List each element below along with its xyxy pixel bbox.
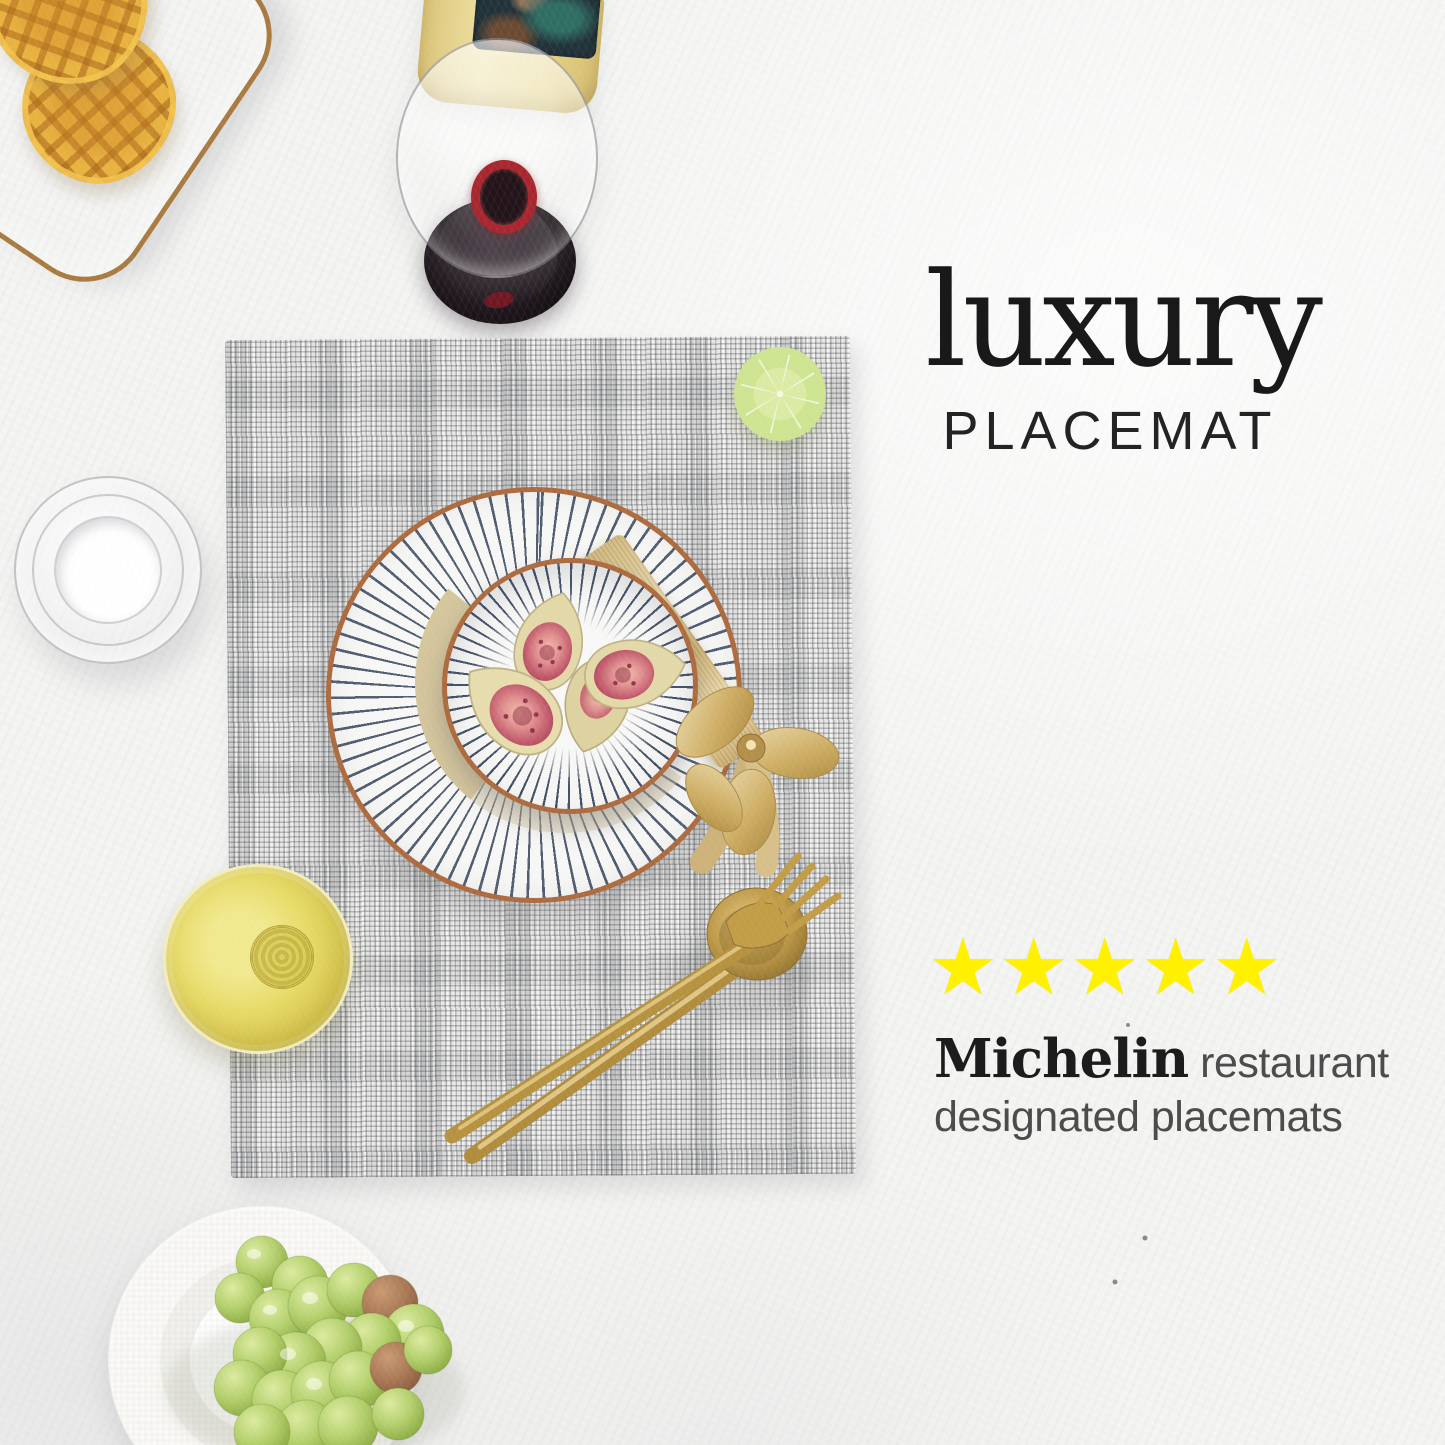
wine-glass-stem-ring bbox=[471, 160, 537, 234]
headline-title: luxury bbox=[925, 250, 1295, 390]
water-glass bbox=[14, 476, 202, 664]
placemat-product-photo: luxury PLACEMAT ★★★★★ Michelinrestaurant… bbox=[0, 0, 1445, 1445]
five-star-rating: ★★★★★ bbox=[928, 926, 1298, 1012]
star-icons: ★★★★★ bbox=[928, 923, 1283, 1013]
tagline-block: Michelinrestaurant designated placemats bbox=[934, 1032, 1364, 1144]
striped-bowl bbox=[442, 558, 698, 814]
tagline-line1: Michelinrestaurant bbox=[934, 1032, 1364, 1090]
lime-half bbox=[734, 347, 826, 441]
tagline-suffix: restaurant bbox=[1200, 1039, 1389, 1087]
tagline-brand: Michelin bbox=[934, 1028, 1188, 1090]
red-wine-glass bbox=[396, 38, 598, 278]
white-wine-glass bbox=[163, 864, 353, 1054]
glass-inner-ring bbox=[54, 516, 162, 624]
glass-base-medallion bbox=[250, 925, 314, 989]
headline-block: luxury PLACEMAT bbox=[925, 250, 1295, 462]
striped-square-plate bbox=[0, 0, 297, 307]
headline-subtitle: PLACEMAT bbox=[925, 400, 1295, 462]
tagline-line2: designated placemats bbox=[934, 1090, 1364, 1144]
white-grapes-plate bbox=[108, 1206, 416, 1445]
